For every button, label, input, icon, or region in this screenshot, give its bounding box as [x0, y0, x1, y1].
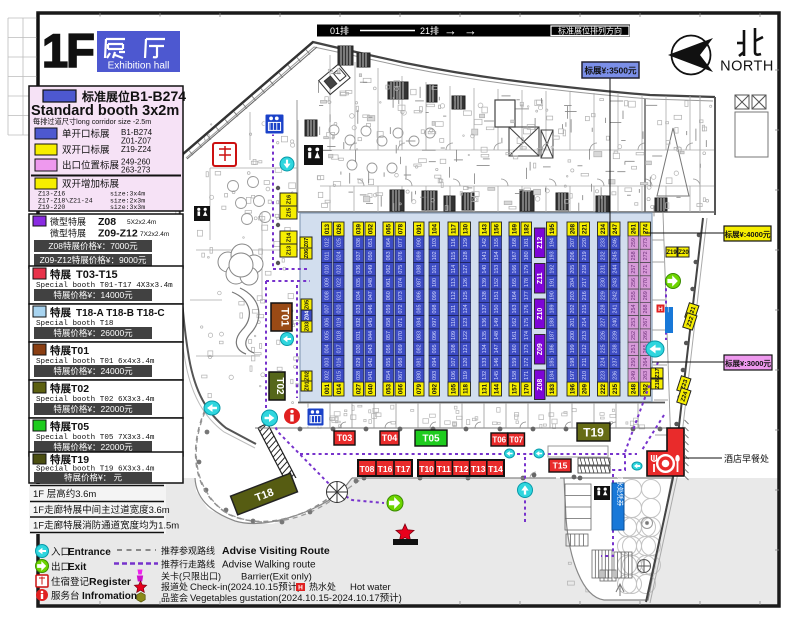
svg-text:推荐参观路线: 推荐参观路线 [161, 545, 215, 556]
svg-text:Z19-Z24: Z19-Z24 [121, 145, 152, 154]
svg-text:081: 081 [417, 358, 423, 367]
svg-text:096: 096 [432, 331, 438, 340]
svg-text:088: 088 [417, 265, 423, 274]
svg-text:Exit: Exit [68, 562, 87, 573]
svg-text:153: 153 [494, 265, 500, 274]
svg-text:169: 169 [511, 223, 518, 234]
svg-text:Z09: Z09 [537, 343, 544, 355]
svg-text:Z10: Z10 [537, 308, 544, 320]
svg-text:182: 182 [523, 223, 530, 234]
svg-text:Z06: Z06 [304, 249, 310, 258]
svg-text:特展价格¥： 元: 特展价格¥： 元 [64, 473, 123, 483]
svg-text:123: 123 [463, 318, 469, 327]
svg-text:044: 044 [368, 331, 374, 340]
svg-text:244: 244 [613, 265, 619, 274]
svg-text:双开增加标展: 双开增加标展 [62, 178, 120, 190]
svg-text:066: 066 [397, 383, 404, 394]
svg-text:Z11: Z11 [537, 272, 544, 284]
svg-text:094: 094 [432, 358, 438, 367]
svg-text:241: 241 [613, 305, 619, 314]
svg-text:148: 148 [494, 331, 500, 340]
svg-text:250: 250 [631, 358, 637, 367]
svg-text:076: 076 [398, 251, 404, 260]
svg-text:202: 202 [570, 305, 576, 314]
svg-text:141: 141 [482, 251, 488, 260]
svg-text:T03: T03 [337, 433, 353, 443]
svg-text:177: 177 [524, 291, 530, 300]
svg-text:211: 211 [582, 358, 588, 367]
svg-text:194: 194 [550, 238, 556, 247]
svg-text:Z09-Z12特展价格¥：9000元: Z09-Z12特展价格¥：9000元 [40, 255, 147, 265]
svg-text:152: 152 [494, 278, 500, 287]
svg-text:043: 043 [368, 344, 374, 353]
svg-text:T15: T15 [553, 461, 568, 471]
svg-text:Z02: Z02 [305, 371, 311, 380]
svg-text:200: 200 [570, 331, 576, 340]
svg-text:015: 015 [337, 371, 343, 380]
svg-text:071: 071 [398, 318, 404, 327]
svg-text:185: 185 [550, 358, 556, 367]
svg-text:特展价格¥：26000元: 特展价格¥：26000元 [53, 328, 133, 338]
svg-text:Z03: Z03 [305, 322, 311, 331]
svg-text:026: 026 [336, 223, 343, 234]
svg-text:特展价格¥：22000元: 特展价格¥：22000元 [53, 442, 133, 452]
svg-text:002: 002 [325, 371, 331, 380]
svg-text:012: 012 [325, 238, 331, 247]
svg-text:单开口标展: 单开口标展 [62, 128, 110, 140]
svg-text:推荐行走路线: 推荐行走路线 [161, 559, 215, 570]
svg-text:微型特展: 微型特展 [50, 228, 86, 239]
svg-text:标准展位: 标准展位 [81, 89, 130, 104]
svg-text:126: 126 [463, 278, 469, 287]
svg-text:257: 257 [631, 265, 637, 274]
svg-text:098: 098 [432, 305, 438, 314]
svg-text:164: 164 [512, 291, 518, 300]
svg-text:172: 172 [524, 358, 530, 367]
svg-text:085: 085 [417, 305, 423, 314]
svg-text:T18-A T18-B T18-C: T18-A T18-B T18-C [76, 308, 165, 319]
svg-text:205: 205 [570, 265, 576, 274]
svg-text:089: 089 [417, 251, 423, 260]
svg-text:酒店早餐处: 酒店早餐处 [724, 453, 769, 464]
svg-text:Barrier(Exit only): Barrier(Exit only) [241, 572, 312, 583]
svg-text:特展T19: 特展T19 [50, 453, 89, 466]
svg-text:231: 231 [601, 265, 607, 274]
svg-text:042: 042 [368, 358, 374, 367]
svg-text:021: 021 [337, 291, 343, 300]
svg-text:091: 091 [416, 223, 423, 234]
svg-text:报道处: 报道处 [161, 581, 188, 592]
svg-text:022: 022 [337, 278, 343, 287]
svg-text:233: 233 [601, 238, 607, 247]
svg-text:134: 134 [482, 344, 488, 353]
svg-text:032: 032 [356, 318, 362, 327]
svg-text:112: 112 [451, 291, 457, 300]
svg-text:180: 180 [524, 251, 530, 260]
svg-text:036: 036 [356, 265, 362, 274]
svg-text:020: 020 [337, 305, 343, 314]
svg-text:249: 249 [631, 371, 637, 380]
svg-text:198: 198 [570, 358, 576, 367]
svg-text:035: 035 [356, 278, 362, 287]
svg-text:229: 229 [601, 291, 607, 300]
svg-text:038: 038 [356, 238, 362, 247]
svg-text:135: 135 [482, 331, 488, 340]
svg-text:T19: T19 [583, 425, 604, 439]
svg-text:255: 255 [631, 291, 637, 300]
svg-text:217: 217 [582, 278, 588, 287]
svg-text:size:3x4m: size:3x4m [110, 191, 145, 198]
svg-text:→: → [464, 23, 477, 38]
svg-text:领水处凭券: 领水处凭券 [616, 474, 625, 507]
svg-text:086: 086 [417, 291, 423, 300]
svg-text:特展T05: 特展T05 [50, 420, 89, 433]
svg-text:001: 001 [324, 383, 331, 394]
svg-text:T06: T06 [492, 435, 506, 444]
svg-text:136: 136 [482, 318, 488, 327]
svg-text:203: 203 [570, 291, 576, 300]
svg-text:Z16: Z16 [287, 195, 293, 204]
svg-text:特展T01: 特展T01 [50, 344, 89, 357]
svg-text:129: 129 [463, 238, 469, 247]
svg-text:228: 228 [601, 305, 607, 314]
svg-text:T03-T15: T03-T15 [76, 269, 118, 281]
svg-text:160: 160 [512, 344, 518, 353]
svg-text:007: 007 [325, 305, 331, 314]
svg-text:137: 137 [482, 305, 488, 314]
svg-text:204: 204 [570, 278, 576, 287]
svg-text:标准展位排列方向: 标准展位排列方向 [558, 26, 622, 36]
svg-text:206: 206 [570, 251, 576, 260]
svg-text:107: 107 [451, 358, 457, 367]
svg-text:Z05: Z05 [305, 300, 311, 309]
svg-text:173: 173 [524, 344, 530, 353]
svg-text:083: 083 [417, 331, 423, 340]
svg-text:263: 263 [643, 371, 649, 380]
svg-text:113: 113 [451, 278, 457, 287]
svg-text:Z17: Z17 [655, 368, 661, 377]
svg-text:108: 108 [451, 344, 457, 353]
svg-text:Z08特展价格¥：7000元: Z08特展价格¥：7000元 [48, 241, 138, 251]
svg-text:156: 156 [493, 223, 500, 234]
svg-text:084: 084 [417, 318, 423, 327]
svg-text:251: 251 [631, 344, 637, 353]
svg-text:023: 023 [337, 265, 343, 274]
svg-text:双开口标展: 双开口标展 [62, 144, 110, 156]
svg-text:196: 196 [569, 383, 576, 394]
svg-text:125: 125 [463, 291, 469, 300]
svg-text:T05: T05 [422, 434, 440, 445]
svg-text:266: 266 [643, 331, 649, 340]
svg-text:004: 004 [325, 344, 331, 353]
svg-text:Z13-Z16: Z13-Z16 [38, 191, 65, 198]
svg-text:Hot water: Hot water [350, 582, 391, 593]
svg-text:207: 207 [570, 238, 576, 247]
svg-text:191: 191 [550, 278, 556, 287]
svg-text:T12: T12 [454, 464, 469, 474]
svg-text:034: 034 [356, 291, 362, 300]
svg-text:248: 248 [630, 383, 637, 394]
svg-text:128: 128 [463, 251, 469, 260]
svg-text:213: 213 [582, 331, 588, 340]
svg-text:219: 219 [582, 251, 588, 260]
svg-text:1F走廊特展中间主过道宽度3.6m: 1F走廊特展中间主过道宽度3.6m [33, 504, 170, 516]
svg-text:145: 145 [494, 371, 500, 380]
svg-text:064: 064 [386, 238, 392, 247]
svg-text:171: 171 [524, 371, 530, 380]
svg-text:品鉴会: 品鉴会 [161, 592, 188, 603]
svg-text:102: 102 [432, 251, 438, 260]
svg-text:030: 030 [356, 344, 362, 353]
svg-text:210: 210 [582, 371, 588, 380]
svg-text:Exhibition hall: Exhibition hall [108, 61, 170, 72]
svg-text:199: 199 [570, 344, 576, 353]
svg-text:052: 052 [367, 223, 374, 234]
svg-text:Z08: Z08 [537, 379, 544, 391]
svg-text:每排过道尺寸long corridor size -2.5m: 每排过道尺寸long corridor size -2.5m [33, 117, 151, 126]
svg-text:099: 099 [432, 291, 438, 300]
svg-text:163: 163 [512, 305, 518, 314]
svg-text:183: 183 [549, 383, 556, 394]
svg-text:7X2x2.4m: 7X2x2.4m [140, 231, 169, 238]
svg-text:093: 093 [432, 371, 438, 380]
svg-text:Z08: Z08 [98, 216, 116, 228]
svg-text:184: 184 [550, 371, 556, 380]
svg-text:104: 104 [431, 223, 438, 234]
svg-text:214: 214 [582, 318, 588, 327]
svg-text:059: 059 [386, 305, 392, 314]
svg-text:T02: T02 [274, 377, 285, 395]
svg-text:139: 139 [482, 278, 488, 287]
svg-text:209: 209 [581, 383, 588, 394]
svg-text:170: 170 [523, 383, 530, 394]
svg-text:132: 132 [482, 371, 488, 380]
svg-text:size:3x3m: size:3x3m [110, 204, 145, 211]
svg-text:121: 121 [463, 344, 469, 353]
svg-text:1F: 1F [42, 24, 93, 77]
svg-text:247: 247 [612, 223, 619, 234]
svg-text:050: 050 [368, 251, 374, 260]
svg-text:031: 031 [356, 331, 362, 340]
svg-text:258: 258 [631, 251, 637, 260]
svg-text:142: 142 [482, 238, 488, 247]
svg-text:119: 119 [463, 371, 469, 380]
svg-text:234: 234 [600, 223, 607, 234]
svg-text:187: 187 [550, 331, 556, 340]
svg-text:272: 272 [643, 251, 649, 260]
svg-text:▏: ▏ [667, 306, 672, 313]
svg-text:Z13: Z13 [287, 246, 293, 255]
svg-text:082: 082 [417, 344, 423, 353]
svg-text:标展¥:3000元: 标展¥:3000元 [724, 358, 771, 368]
svg-text:Advise Walking route: Advise Walking route [222, 560, 316, 571]
svg-text:046: 046 [368, 305, 374, 314]
svg-text:215: 215 [582, 305, 588, 314]
svg-text:175: 175 [524, 318, 530, 327]
svg-text:159: 159 [512, 358, 518, 367]
svg-text:051: 051 [368, 238, 374, 247]
svg-text:111: 111 [451, 305, 457, 313]
svg-text:118: 118 [462, 383, 469, 393]
svg-text:048: 048 [368, 278, 374, 287]
svg-text:186: 186 [550, 344, 556, 353]
svg-text:058: 058 [386, 318, 392, 327]
svg-text:140: 140 [482, 265, 488, 274]
svg-text:192: 192 [550, 265, 556, 274]
svg-text:080: 080 [417, 371, 423, 380]
svg-text:253: 253 [631, 318, 637, 327]
svg-text:268: 268 [643, 305, 649, 314]
svg-text:B1-B274: B1-B274 [130, 88, 186, 104]
svg-text:039: 039 [355, 223, 362, 234]
svg-text:063: 063 [386, 251, 392, 260]
svg-text:267: 267 [643, 318, 649, 327]
svg-text:274: 274 [642, 223, 649, 234]
svg-text:116: 116 [451, 238, 457, 247]
svg-text:101: 101 [432, 265, 438, 274]
svg-text:027: 027 [355, 383, 362, 394]
svg-text:01排: 01排 [330, 25, 349, 36]
svg-text:特展T02: 特展T02 [50, 382, 89, 395]
svg-text:143: 143 [481, 223, 488, 234]
svg-text:218: 218 [582, 265, 588, 274]
svg-text:224: 224 [601, 358, 607, 367]
svg-text:115: 115 [451, 252, 457, 261]
svg-text:006: 006 [325, 318, 331, 327]
svg-text:263-273: 263-273 [121, 166, 151, 175]
svg-text:T11: T11 [437, 464, 451, 474]
svg-text:179: 179 [524, 265, 530, 274]
svg-text:056: 056 [386, 344, 392, 353]
svg-text:061: 061 [386, 278, 392, 287]
svg-text:054: 054 [386, 371, 392, 380]
svg-text:220: 220 [582, 238, 588, 247]
svg-text:155: 155 [494, 238, 500, 247]
svg-text:269: 269 [643, 291, 649, 300]
svg-text:189: 189 [550, 305, 556, 314]
svg-text:238: 238 [613, 344, 619, 353]
svg-text:167: 167 [512, 251, 518, 260]
svg-text:259: 259 [631, 238, 637, 247]
svg-text:261: 261 [630, 223, 637, 234]
svg-text:226: 226 [601, 331, 607, 340]
svg-text:146: 146 [494, 358, 500, 367]
svg-text:122: 122 [463, 331, 469, 340]
svg-text:243: 243 [613, 278, 619, 287]
svg-text:161: 161 [512, 331, 518, 340]
svg-text:Z04: Z04 [305, 310, 311, 320]
svg-text:147: 147 [494, 344, 500, 353]
svg-text:092: 092 [431, 383, 438, 394]
svg-text:特展: 特展 [50, 268, 71, 281]
svg-text:053: 053 [385, 383, 392, 394]
svg-text:230: 230 [601, 278, 607, 287]
svg-text:Z01: Z01 [305, 381, 311, 390]
svg-text:090: 090 [417, 238, 423, 247]
svg-text:005: 005 [325, 331, 331, 340]
svg-text:047: 047 [368, 291, 374, 300]
svg-text:208: 208 [569, 223, 576, 234]
svg-text:236: 236 [613, 371, 619, 380]
svg-text:270: 270 [643, 278, 649, 287]
svg-text:040: 040 [367, 383, 374, 394]
svg-text:T07: T07 [509, 435, 523, 444]
svg-text:075: 075 [398, 265, 404, 274]
svg-text:106: 106 [451, 371, 457, 380]
svg-text:271: 271 [643, 265, 649, 274]
svg-text:197: 197 [570, 371, 576, 380]
svg-text:144: 144 [493, 383, 500, 394]
svg-text:100: 100 [432, 278, 438, 287]
svg-text:Z12: Z12 [537, 237, 544, 249]
svg-text:Special booth T05 7X3x3.4m: Special booth T05 7X3x3.4m [36, 434, 155, 442]
svg-text:T14: T14 [488, 464, 503, 474]
svg-text:264: 264 [643, 358, 649, 367]
svg-text:262: 262 [642, 383, 649, 394]
svg-text:237: 237 [613, 358, 619, 367]
svg-text:Infromation: Infromation [82, 591, 137, 602]
svg-text:065: 065 [385, 223, 392, 234]
svg-text:Advise Visiting Route: Advise Visiting Route [222, 545, 330, 557]
svg-text:T04: T04 [382, 433, 398, 443]
svg-text:关卡(只限出口): 关卡(只限出口) [161, 571, 221, 582]
svg-text:149: 149 [494, 318, 500, 327]
svg-text:标展¥:3500元: 标展¥:3500元 [584, 66, 637, 76]
svg-text:074: 074 [398, 278, 404, 287]
svg-text:245: 245 [613, 251, 619, 260]
svg-text:H: H [298, 585, 303, 592]
svg-text:242: 242 [613, 291, 619, 300]
svg-text:Z20: Z20 [678, 250, 689, 256]
svg-text:131: 131 [481, 383, 488, 394]
svg-text:024: 024 [337, 251, 343, 260]
svg-text:273: 273 [643, 238, 649, 247]
svg-text:157: 157 [511, 383, 518, 394]
svg-text:103: 103 [432, 238, 438, 247]
svg-text:019: 019 [337, 318, 343, 327]
svg-text:246: 246 [613, 238, 619, 247]
svg-text:Special booth T01-T17 4X3x3.4m: Special booth T01-T17 4X3x3.4m [36, 282, 173, 290]
svg-text:120: 120 [463, 358, 469, 367]
svg-text:Special booth T01 6x4x3.4m: Special booth T01 6x4x3.4m [36, 358, 155, 366]
svg-text:017: 017 [337, 344, 343, 353]
svg-text:072: 072 [398, 305, 404, 314]
svg-text:住宿登记: 住宿登记 [51, 576, 90, 588]
svg-text:5X2x2.4m: 5X2x2.4m [127, 219, 156, 226]
svg-text:025: 025 [337, 238, 343, 247]
svg-text:009: 009 [325, 278, 331, 287]
svg-text:微型特展: 微型特展 [50, 216, 86, 227]
svg-text:068: 068 [398, 358, 404, 367]
svg-text:222: 222 [600, 383, 607, 394]
svg-text:154: 154 [494, 251, 500, 260]
svg-text:011: 011 [325, 252, 331, 261]
svg-text:252: 252 [631, 331, 637, 340]
svg-text:标展¥:4000元: 标展¥:4000元 [724, 229, 771, 239]
svg-text:1F 层高约3.6m: 1F 层高约3.6m [33, 488, 96, 500]
svg-text:热水处: 热水处 [309, 581, 336, 592]
svg-text:Check-in(2024.10.15预计): Check-in(2024.10.15预计) [190, 581, 300, 593]
svg-text:Z09-Z12: Z09-Z12 [98, 228, 138, 240]
svg-text:003: 003 [325, 358, 331, 367]
svg-text:T01: T01 [279, 308, 291, 327]
svg-text:Z14: Z14 [287, 232, 293, 242]
svg-text:014: 014 [336, 383, 343, 394]
svg-text:NORTH: NORTH [720, 59, 774, 75]
svg-text:151: 151 [494, 291, 500, 300]
svg-text:008: 008 [325, 291, 331, 300]
svg-text:193: 193 [550, 251, 556, 260]
